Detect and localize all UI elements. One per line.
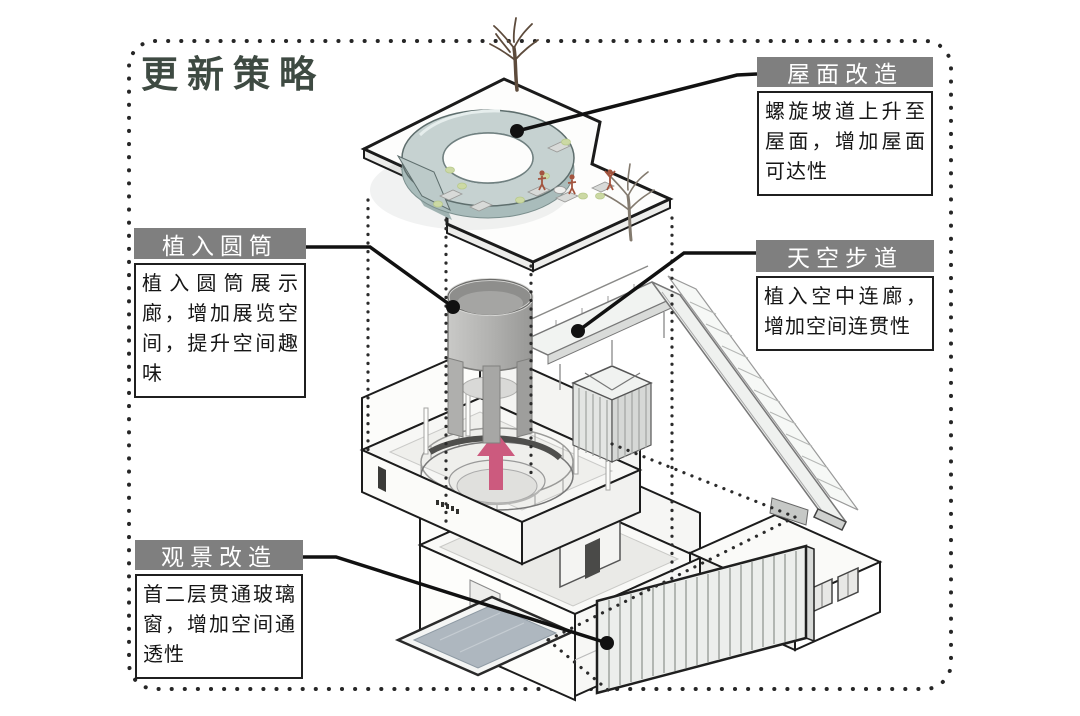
anchor-dot-viewing bbox=[600, 636, 614, 650]
page-title: 更新策略 bbox=[141, 44, 325, 98]
callout-roof-header: 屋面改造 bbox=[757, 57, 933, 87]
callout-cylinder-body: 植入圆筒展示廊，增加展览空间，提升空间趣味 bbox=[134, 263, 306, 398]
anchor-dot-skywalk bbox=[571, 324, 585, 338]
callout-cylinder-header: 植入圆筒 bbox=[134, 228, 306, 259]
figure-canvas: 更新策略 屋面改造 螺旋坡道上升至屋面，增加屋面可达性 植入圆筒 植入圆筒展示廊… bbox=[0, 0, 1080, 716]
callout-roof: 屋面改造 螺旋坡道上升至屋面，增加屋面可达性 bbox=[757, 57, 933, 196]
callout-roof-body: 螺旋坡道上升至屋面，增加屋面可达性 bbox=[757, 91, 933, 196]
striped-hut bbox=[573, 366, 651, 462]
callout-cylinder: 植入圆筒 植入圆筒展示廊，增加展览空间，提升空间趣味 bbox=[134, 228, 306, 398]
anchor-dot-cylinder bbox=[446, 300, 460, 314]
callout-viewing-body: 首二层贯通玻璃窗，增加空间通透性 bbox=[135, 574, 303, 679]
callout-viewing-header: 观景改造 bbox=[135, 540, 303, 570]
leader-line-cylinder bbox=[305, 247, 453, 307]
anchor-dot-roof bbox=[510, 124, 524, 138]
callout-skywalk-header: 天空步道 bbox=[756, 240, 934, 272]
callout-skywalk: 天空步道 植入空中连廊，增加空间连贯性 bbox=[756, 240, 934, 351]
cylinder-gallery bbox=[448, 280, 532, 444]
roof-slab bbox=[364, 18, 670, 271]
bare-tree-icon bbox=[490, 18, 538, 90]
callout-viewing: 观景改造 首二层贯通玻璃窗，增加空间通透性 bbox=[135, 540, 303, 679]
callout-skywalk-body: 植入空中连廊，增加空间连贯性 bbox=[756, 276, 934, 351]
